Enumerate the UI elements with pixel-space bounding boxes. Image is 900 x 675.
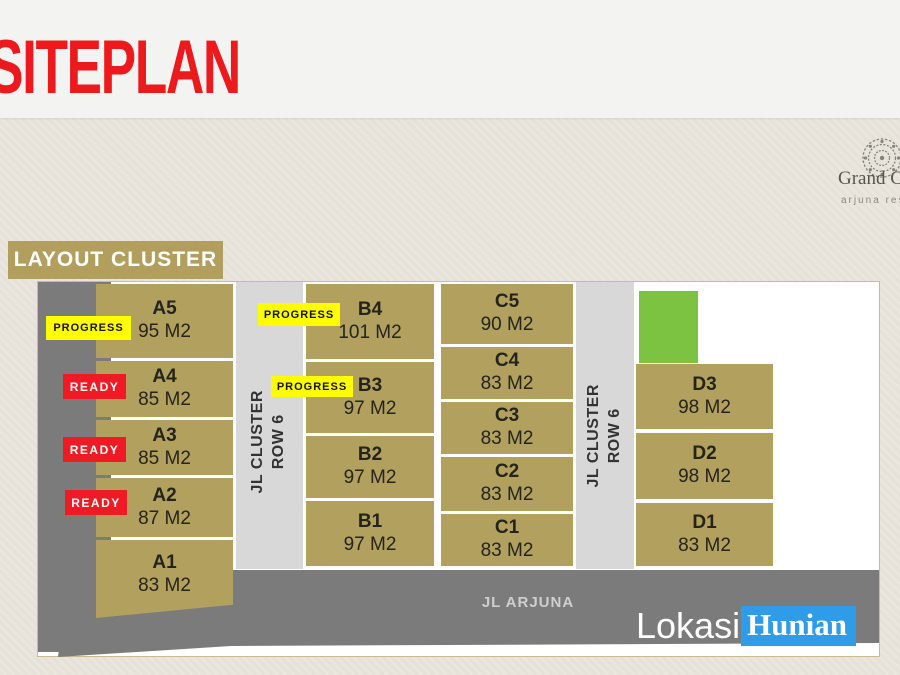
plot-id: C3	[495, 405, 519, 428]
plot-id: C4	[495, 350, 519, 373]
plot-id: A1	[152, 552, 176, 575]
plot-id: A3	[152, 425, 176, 448]
plot-area: 87 M2	[138, 508, 191, 531]
lokasi-hunian-watermark: Lokasi Hunian	[636, 606, 856, 646]
status-badge-progress-b4: PROGRESS	[258, 303, 340, 326]
plot-id: A2	[152, 485, 176, 508]
plot-area: 97 M2	[344, 398, 397, 421]
brand-name: Grand Ca	[838, 168, 900, 190]
plot-id: C1	[495, 517, 519, 540]
road-label-line1: JL CLUSTER	[248, 367, 269, 517]
road-label-jl-arjuna: JL ARJUNA	[458, 594, 598, 611]
page-title: SITEPLAN	[0, 30, 240, 106]
plot-area: 95 M2	[138, 321, 191, 344]
watermark-lokasi: Lokasi	[636, 608, 740, 644]
plot-id: C5	[495, 291, 519, 314]
plot-b2: B2 97 M2	[306, 436, 434, 498]
plot-id: D3	[692, 374, 716, 397]
plot-id: D1	[692, 512, 716, 535]
plot-area: 83 M2	[678, 535, 731, 558]
plot-area: 101 M2	[338, 322, 401, 345]
plot-area: 97 M2	[344, 534, 397, 557]
layout-cluster-heading: LAYOUT CLUSTER	[8, 241, 223, 279]
status-badge-ready-a3: READY	[63, 437, 126, 462]
plot-a1: A1 83 M2	[96, 540, 233, 618]
plot-id: A4	[152, 366, 176, 389]
plot-c1: C1 83 M2	[441, 514, 573, 566]
plot-green	[639, 291, 698, 363]
plot-area: 83 M2	[481, 373, 534, 396]
plot-d2: D2 98 M2	[636, 433, 773, 499]
plot-area: 85 M2	[138, 389, 191, 412]
watermark-hunian: Hunian	[741, 606, 856, 646]
plot-area: 83 M2	[138, 575, 191, 598]
plot-area: 85 M2	[138, 448, 191, 471]
road-label-right: JL CLUSTER ROW 6	[584, 361, 626, 511]
plot-c2: C2 83 M2	[441, 457, 573, 511]
plot-c3: C3 83 M2	[441, 402, 573, 454]
plot-id: B1	[358, 511, 382, 534]
plot-area: 98 M2	[678, 397, 731, 420]
status-badge-ready-a2: READY	[65, 490, 127, 515]
road-label-line2: ROW 6	[605, 361, 626, 511]
plot-id: D2	[692, 443, 716, 466]
plot-area: 83 M2	[481, 540, 534, 563]
plot-area: 90 M2	[481, 314, 534, 337]
plot-b3: B3 97 M2	[306, 362, 434, 433]
siteplan-slide: SITEPLAN Grand Ca arjuna resi LAYOUT CLU…	[0, 0, 900, 675]
status-badge-progress-b3: PROGRESS	[271, 376, 353, 397]
plot-id: B2	[358, 444, 382, 467]
plot-c4: C4 83 M2	[441, 347, 573, 399]
plot-area: 83 M2	[481, 428, 534, 451]
road-label-line1: JL CLUSTER	[584, 361, 605, 511]
status-badge-ready-a4: READY	[63, 374, 126, 399]
plot-area: 98 M2	[678, 466, 731, 489]
status-badge-progress-a5: PROGRESS	[46, 316, 131, 340]
plot-area: 97 M2	[344, 467, 397, 490]
plot-d3: D3 98 M2	[636, 364, 773, 429]
plot-d1: D1 83 M2	[636, 503, 773, 566]
plot-area: 83 M2	[481, 484, 534, 507]
siteplan-canvas: JL CLUSTER ROW 6 JL CLUSTER ROW 6 JL ARJ…	[37, 281, 880, 657]
plot-c5: C5 90 M2	[441, 284, 573, 344]
plot-id: B4	[358, 299, 382, 322]
plot-b1: B1 97 M2	[306, 501, 434, 566]
plot-id: C2	[495, 461, 519, 484]
brand-tagline: arjuna resi	[841, 195, 900, 206]
plot-id: A5	[152, 298, 176, 321]
plot-id: B3	[358, 375, 382, 398]
